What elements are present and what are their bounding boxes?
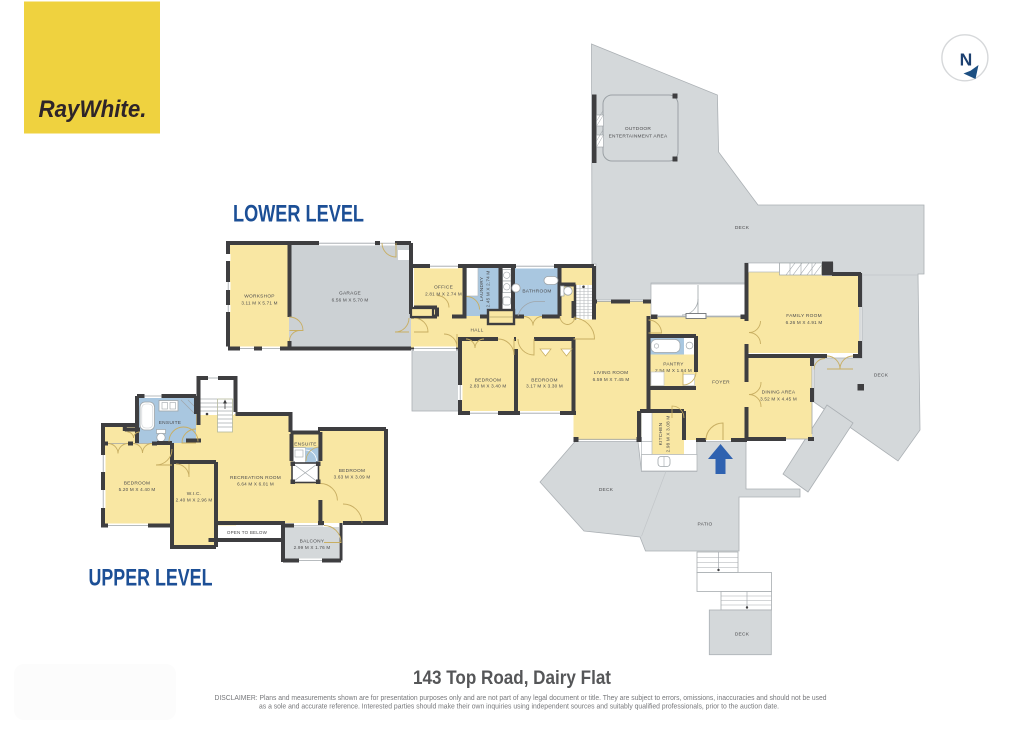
svg-text:PATIO: PATIO [698, 522, 713, 528]
svg-text:ENTERTAINMENT AREA: ENTERTAINMENT AREA [609, 134, 668, 140]
svg-text:BEDROOM: BEDROOM [124, 481, 151, 487]
svg-text:HALL: HALL [471, 328, 484, 334]
svg-text:DECK: DECK [735, 632, 750, 638]
svg-text:OUTDOOR: OUTDOOR [625, 126, 652, 132]
svg-text:6.59 M X 7.45 M: 6.59 M X 7.45 M [593, 377, 630, 382]
svg-text:N: N [960, 49, 973, 69]
svg-text:3.11 M X 5.71 M: 3.11 M X 5.71 M [241, 301, 277, 306]
svg-text:2.83 M X 3.40 M: 2.83 M X 3.40 M [470, 384, 507, 389]
svg-text:BEDROOM: BEDROOM [339, 468, 366, 474]
svg-text:2.45 M X 2.74 M: 2.45 M X 2.74 M [486, 271, 491, 308]
svg-text:OPEN TO BELOW: OPEN TO BELOW [227, 530, 268, 535]
svg-text:as a sole and accurate referen: as a sole and accurate reference. Intere… [259, 704, 779, 711]
svg-text:ENSUITE: ENSUITE [159, 420, 182, 426]
svg-text:DECK: DECK [599, 487, 614, 493]
svg-text:UPPER LEVEL: UPPER LEVEL [89, 565, 213, 592]
svg-text:2.81 M X 2.74 M: 2.81 M X 2.74 M [425, 292, 462, 297]
svg-text:WORKSHOP: WORKSHOP [244, 294, 275, 300]
svg-text:DINING AREA: DINING AREA [762, 390, 796, 396]
svg-text:RECREATION ROOM: RECREATION ROOM [230, 475, 281, 481]
svg-text:6.26 M X 4.91 M: 6.26 M X 4.91 M [786, 320, 823, 325]
svg-text:6.56 M X 5.70 M: 6.56 M X 5.70 M [332, 298, 369, 303]
svg-text:2.98 M X 3.08 M: 2.98 M X 3.08 M [666, 416, 671, 453]
svg-text:LOWER LEVEL: LOWER LEVEL [233, 201, 364, 228]
svg-text:FAMILY ROOM: FAMILY ROOM [786, 313, 822, 319]
svg-text:3.17 M X 3.30 M: 3.17 M X 3.30 M [526, 384, 563, 389]
svg-text:W.I.C.: W.I.C. [187, 491, 202, 497]
svg-text:LAUNDRY: LAUNDRY [479, 276, 485, 301]
svg-text:DECK: DECK [735, 225, 750, 231]
svg-text:KITCHEN: KITCHEN [658, 422, 664, 445]
svg-text:LIVING ROOM: LIVING ROOM [594, 370, 629, 376]
svg-text:BATHROOM: BATHROOM [522, 289, 551, 295]
svg-text:2.40 M X 2.96 M: 2.40 M X 2.96 M [176, 498, 213, 503]
svg-text:3.52 M X 4.45 M: 3.52 M X 4.45 M [760, 397, 797, 402]
svg-text:3.63 M X 3.09 M: 3.63 M X 3.09 M [334, 475, 371, 480]
svg-text:5.20 M X 4.40 M: 5.20 M X 4.40 M [119, 487, 156, 492]
svg-text:DISCLAIMER: Plans and measurem: DISCLAIMER: Plans and measurements shown… [215, 695, 827, 702]
svg-text:GARAGE: GARAGE [339, 291, 361, 297]
svg-text:RayWhite.: RayWhite. [39, 96, 147, 123]
svg-text:ENSUITE: ENSUITE [294, 442, 317, 448]
svg-text:DECK: DECK [874, 373, 889, 379]
svg-text:6.64 M X 6.01 M: 6.64 M X 6.01 M [237, 482, 274, 487]
svg-text:FOYER: FOYER [712, 380, 730, 386]
svg-text:BALCONY: BALCONY [300, 539, 325, 545]
svg-text:143 Top Road, Dairy Flat: 143 Top Road, Dairy Flat [413, 667, 611, 689]
svg-text:2.99 M X 1.76 M: 2.99 M X 1.76 M [294, 545, 331, 550]
svg-text:OFFICE: OFFICE [434, 285, 453, 291]
svg-text:PANTRY: PANTRY [663, 362, 684, 368]
